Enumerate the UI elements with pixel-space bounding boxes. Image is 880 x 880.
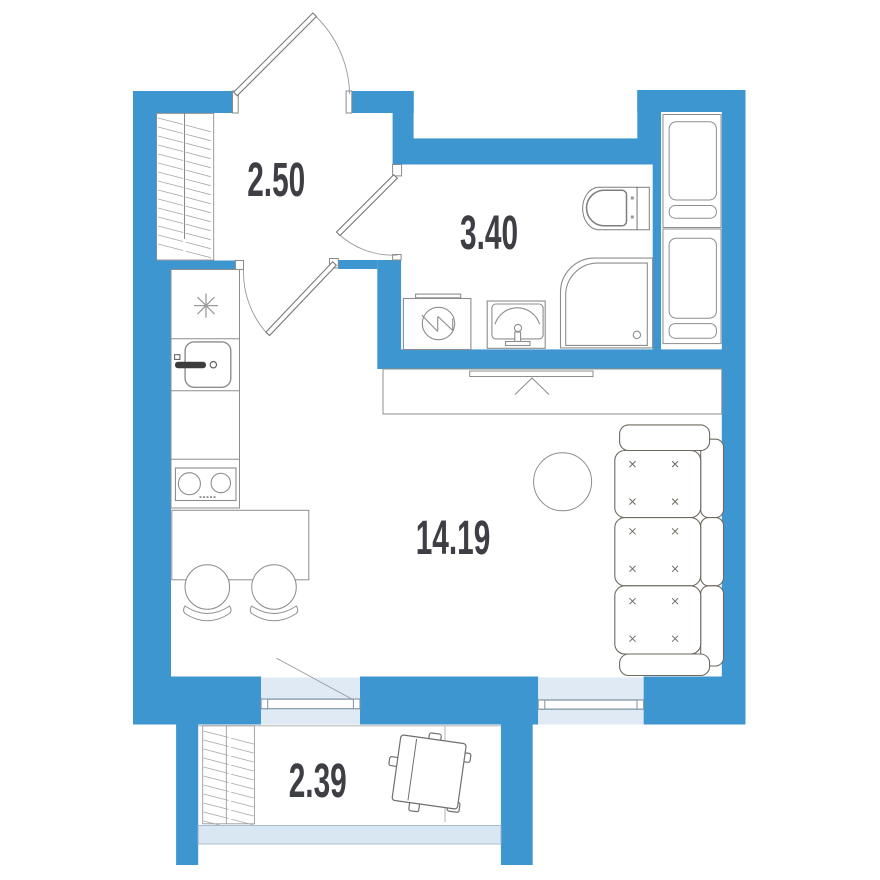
svg-text:3.40: 3.40 bbox=[460, 206, 518, 260]
svg-text:2.39: 2.39 bbox=[289, 754, 347, 808]
svg-text:2.50: 2.50 bbox=[247, 153, 305, 207]
svg-text:14.19: 14.19 bbox=[416, 511, 491, 565]
